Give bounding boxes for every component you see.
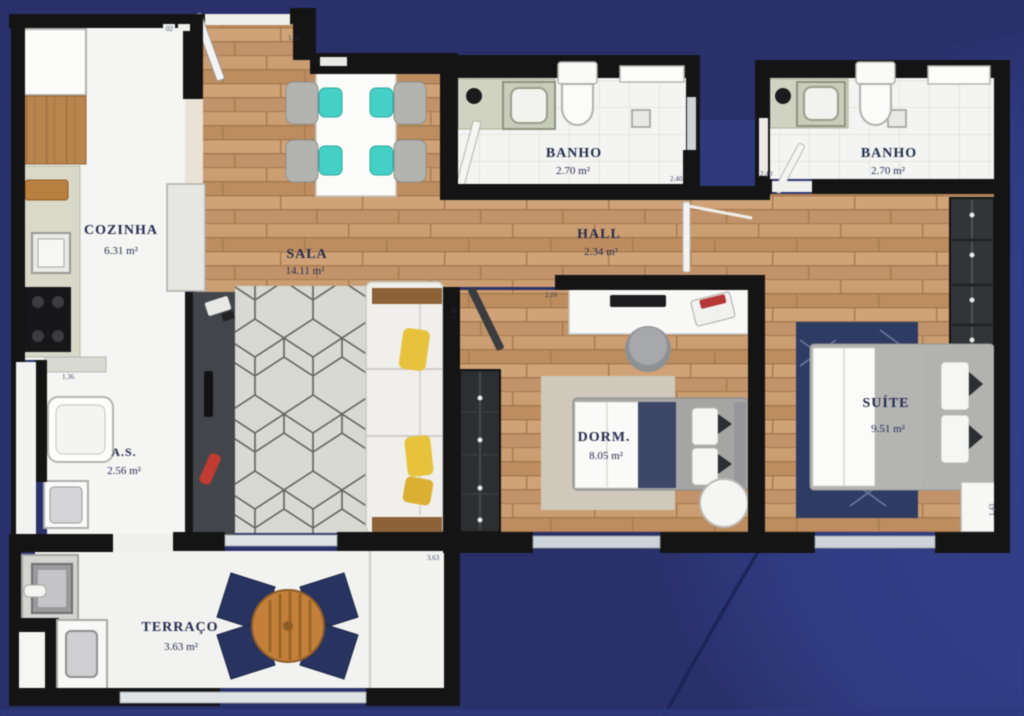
svg-text:A.S.: A.S. (111, 445, 136, 459)
svg-text:SUÍTE: SUÍTE (862, 394, 909, 411)
svg-text:3.63 m²: 3.63 m² (164, 641, 199, 653)
svg-text:TERRAÇO: TERRAÇO (141, 620, 218, 635)
svg-text:2.16: 2.16 (545, 291, 558, 299)
svg-text:COZINHA: COZINHA (84, 223, 158, 238)
svg-text:HALL: HALL (577, 227, 621, 242)
svg-text:8.05 m²: 8.05 m² (589, 450, 624, 462)
svg-text:1.26: 1.26 (333, 45, 346, 53)
svg-text:2.56 m²: 2.56 m² (107, 465, 142, 477)
svg-text:1.40: 1.40 (450, 306, 458, 319)
svg-text:02: 02 (166, 25, 174, 33)
svg-text:1.36: 1.36 (62, 373, 75, 381)
svg-text:2.40: 2.40 (670, 175, 683, 183)
svg-text:1.26: 1.26 (288, 34, 301, 42)
svg-text:2.40: 2.40 (760, 170, 773, 178)
svg-text:1.43: 1.43 (988, 503, 996, 516)
svg-text:6.31 m²: 6.31 m² (104, 245, 139, 257)
svg-text:DORM.: DORM. (578, 430, 631, 445)
svg-text:SALA: SALA (286, 247, 327, 262)
svg-text:2.70 m²: 2.70 m² (871, 165, 906, 177)
svg-text:2.34 m²: 2.34 m² (584, 246, 619, 258)
svg-text:9.51 m²: 9.51 m² (871, 423, 906, 435)
svg-text:14.11 m²: 14.11 m² (286, 265, 326, 277)
svg-text:BANHO: BANHO (861, 146, 917, 161)
svg-text:2.70 m²: 2.70 m² (556, 165, 591, 177)
svg-text:3.63: 3.63 (427, 554, 440, 562)
svg-text:BANHO: BANHO (546, 146, 602, 161)
